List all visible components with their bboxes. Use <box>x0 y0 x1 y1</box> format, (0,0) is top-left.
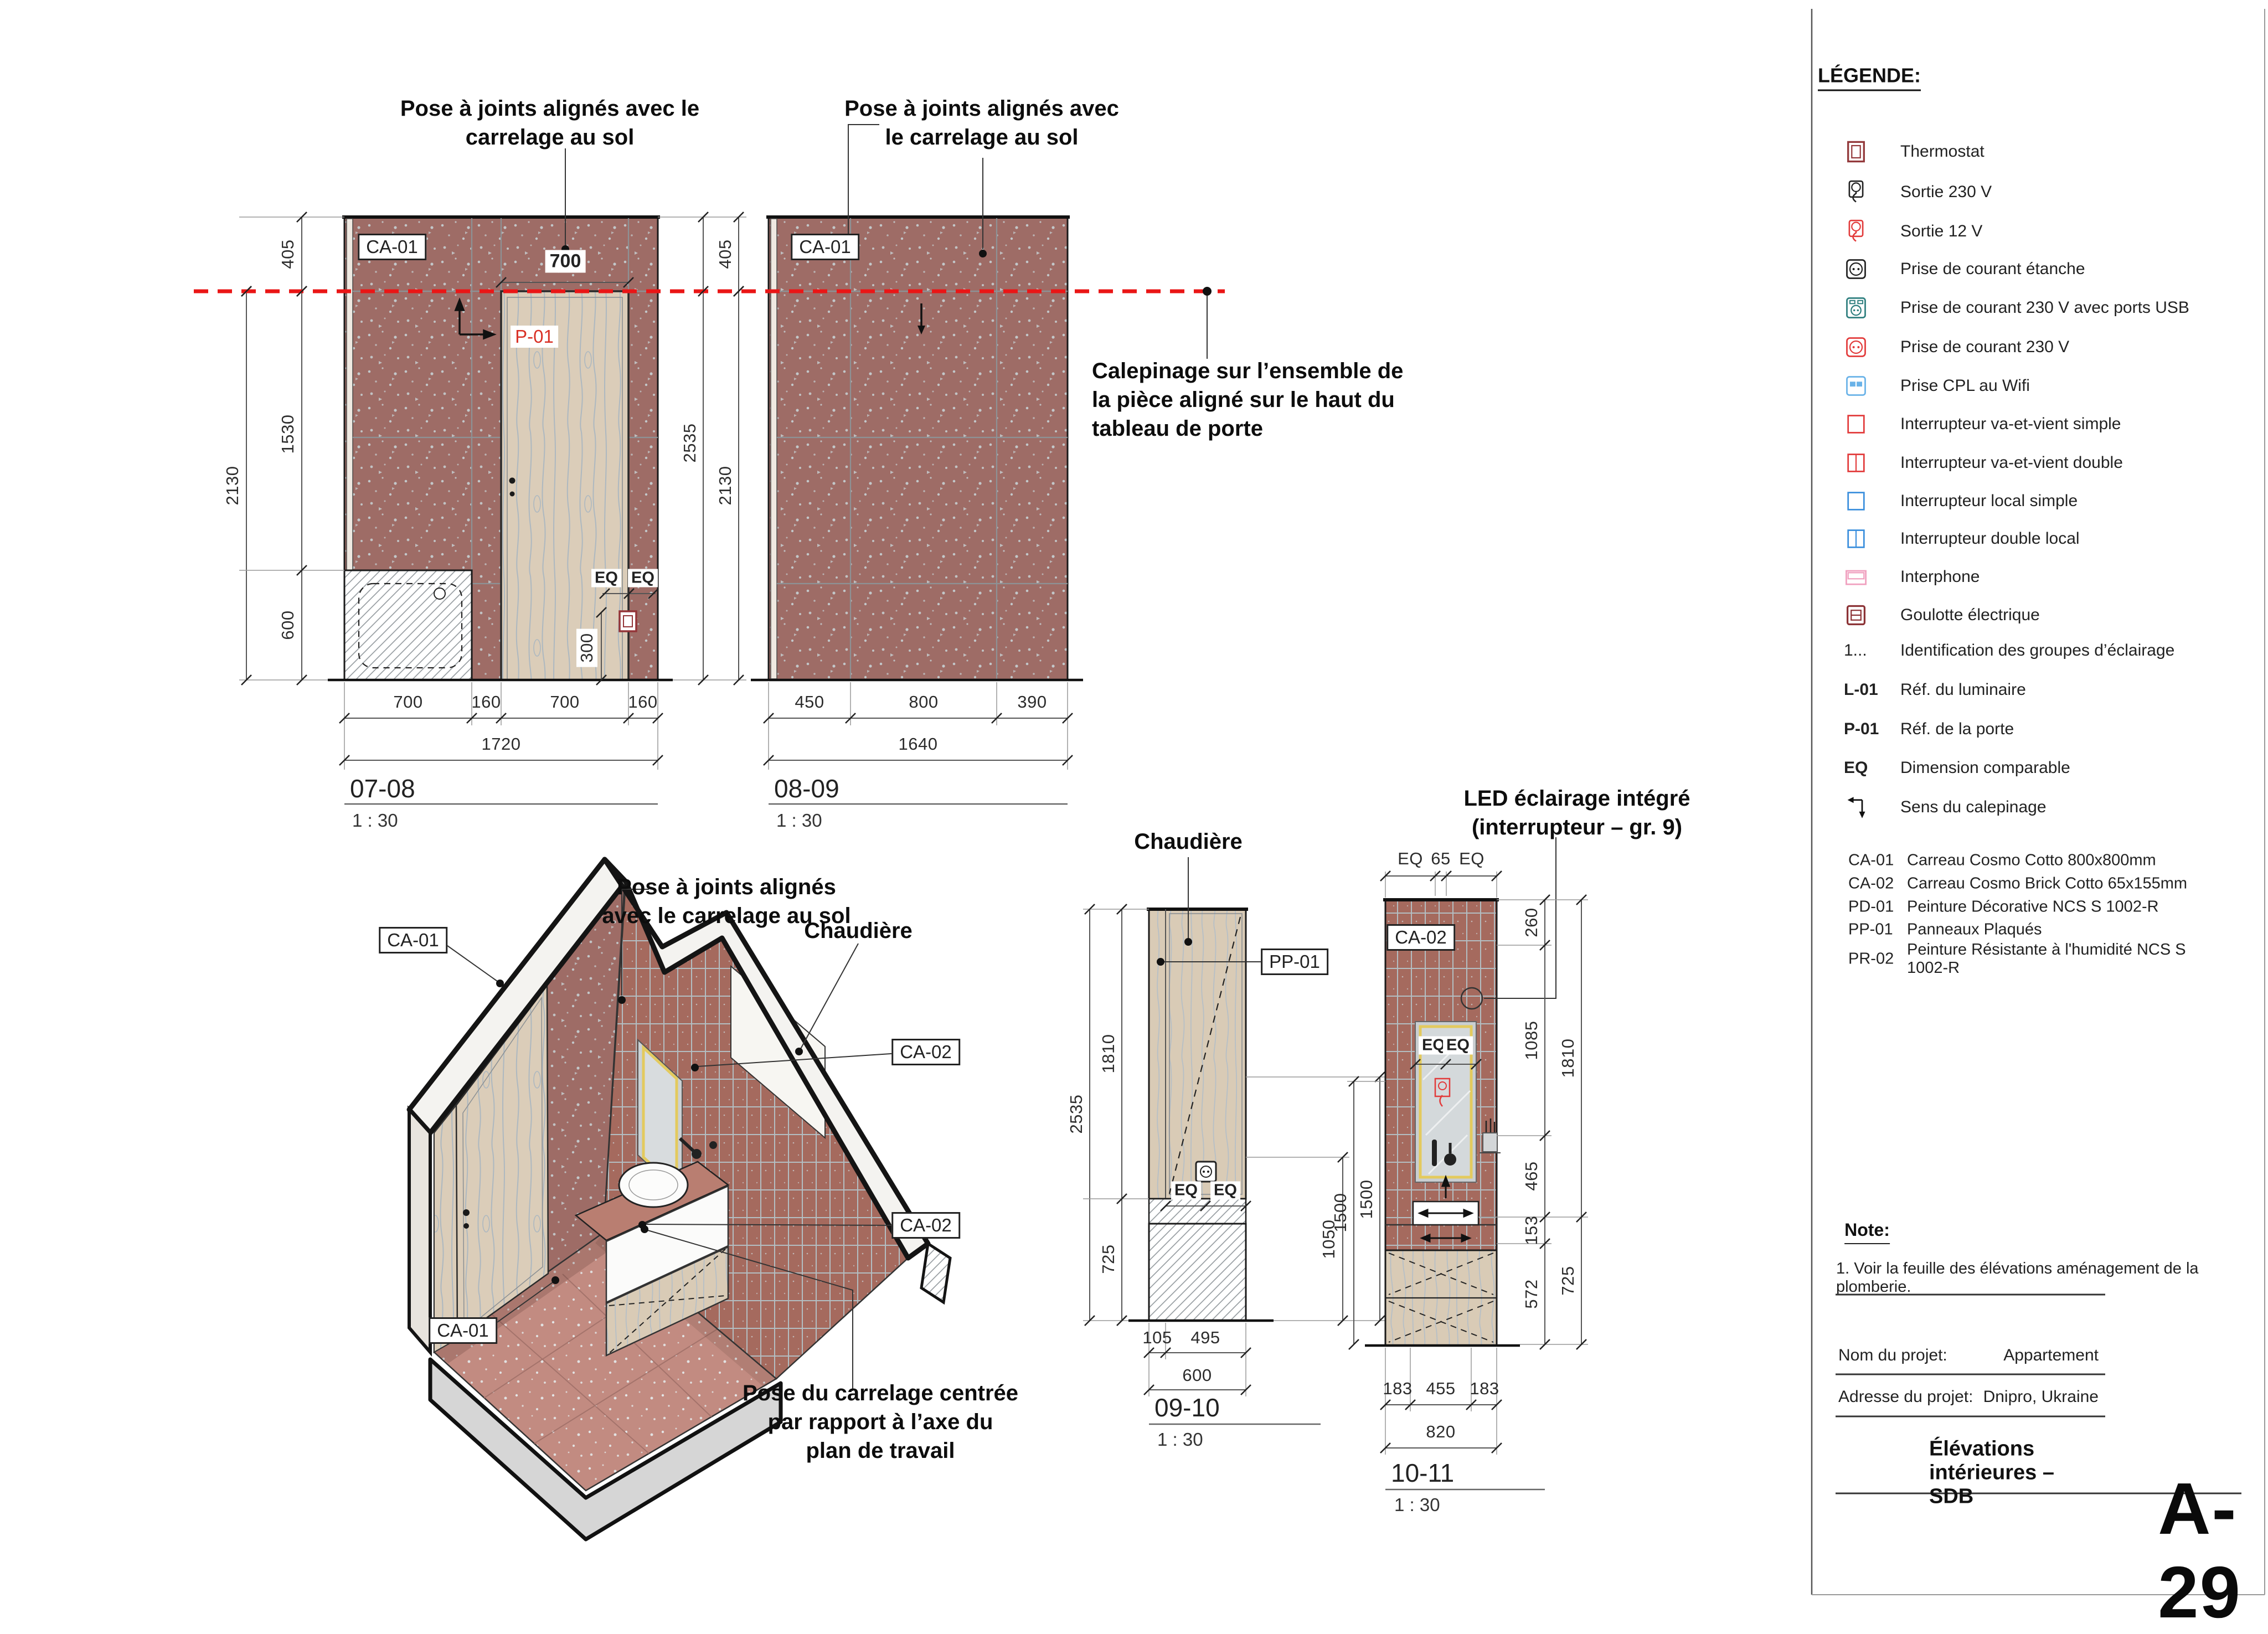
outlet-230v-icon <box>1844 180 1868 204</box>
legend-item-label: Prise de courant étanche <box>1900 260 2255 279</box>
tag-p01: P-01 <box>511 326 558 348</box>
view-scale-1011: 1 : 30 <box>1394 1494 1440 1516</box>
legend-item-label: Prise CPL au Wifi <box>1900 377 2255 395</box>
socket-usb-icon <box>1844 296 1868 320</box>
dim-label: 160 <box>628 692 657 712</box>
switch-2way-single-icon <box>1844 412 1868 436</box>
tag-ca01-axon-floor: CA-01 <box>429 1317 497 1344</box>
view-title-1011: 10-11 <box>1391 1458 1454 1488</box>
dim-label: 1810 <box>1099 1034 1118 1074</box>
eq-label: EQ <box>591 569 621 587</box>
dim-label: 1720 <box>482 734 521 754</box>
material-label: Panneaux Plaqués <box>1907 921 2228 939</box>
socket-symbol <box>1196 1162 1216 1182</box>
view-title-0910: 09-10 <box>1154 1393 1220 1422</box>
dim-label: 700 <box>393 692 422 712</box>
legend-material: PR-02Peinture Résistante à l'humidité NC… <box>1836 944 2262 975</box>
legend-item-label: Interrupteur va-et-vient simple <box>1900 415 2255 434</box>
legend-item: Interrupteur double local <box>1836 523 2262 554</box>
eq-label: EQ <box>1171 1182 1201 1200</box>
door-p01 <box>501 291 628 680</box>
sheet-number: A-29 <box>2158 1467 2241 1634</box>
view-title-0708: 07-08 <box>350 774 415 803</box>
dim-300: 300 <box>576 628 597 667</box>
legend-ref: 1...Identification des groupes d’éclaira… <box>1836 635 2262 666</box>
dim-label: 1500 <box>1357 1180 1377 1219</box>
outlet-12v-icon <box>1844 219 1868 244</box>
tag-ca02-axon-counter: CA-02 <box>891 1212 960 1239</box>
legend-item: Interphone <box>1836 561 2262 592</box>
tag-ca01-axon-wall: CA-01 <box>379 927 447 953</box>
legend-item-label: Sortie 230 V <box>1900 183 2255 202</box>
material-code: CA-01 <box>1848 852 1894 870</box>
legend-item-label: Interrupteur double local <box>1900 529 2255 548</box>
dim-label: 390 <box>1017 692 1047 712</box>
note-title: Note: <box>1844 1220 1890 1244</box>
project-address-label: Adresse du projet: <box>1838 1388 1973 1406</box>
legend-item-label: Interrupteur local simple <box>1900 492 2255 511</box>
legend-ref: Sens du calepinage <box>1836 792 2262 823</box>
tag-ca01-e0708: CA-01 <box>358 234 426 260</box>
legend-item: Goulotte électrique <box>1836 600 2262 631</box>
dim-label: 2535 <box>1066 1095 1086 1134</box>
legend-item-label: Prise de courant 230 V <box>1900 338 2255 357</box>
drawing-sheet: Pose à joints alignés avec lecarrelage a… <box>0 0 2268 1604</box>
tag-ca02-axon-wall: CA-02 <box>891 1039 960 1065</box>
material-label: Peinture Résistante à l'humidité NCS S 1… <box>1907 941 2228 977</box>
dim-label: 260 <box>1522 908 1542 937</box>
project-name-label: Nom du projet: <box>1838 1346 1947 1365</box>
annotation-pose-0708: Pose à joints alignés avec lecarrelage a… <box>400 94 699 152</box>
project-name-value: Appartement <box>2003 1346 2099 1365</box>
legend-item: Interrupteur va-et-vient double <box>1836 447 2262 478</box>
view-scale-0708: 1 : 30 <box>352 810 398 831</box>
bathtub-hatched <box>344 570 472 680</box>
legend-ref-label: Identification des groupes d’éclairage <box>1900 641 2255 660</box>
material-code: CA-02 <box>1848 875 1894 893</box>
dim-label: EQ <box>1459 849 1484 869</box>
view-scale-0809: 1 : 30 <box>776 810 822 831</box>
switch-local-double-icon <box>1844 527 1868 551</box>
dim-label: 105 <box>1142 1328 1172 1348</box>
dim-label: 2130 <box>715 466 735 506</box>
material-label: Carreau Cosmo Brick Cotto 65x155mm <box>1907 875 2228 893</box>
duct-icon <box>1844 603 1868 627</box>
material-label: Peinture Décorative NCS S 1002-R <box>1907 898 2228 916</box>
legend-ref-label: Sens du calepinage <box>1900 798 2255 817</box>
eq-label: EQ <box>1443 1037 1473 1055</box>
dim-label: 600 <box>1182 1365 1212 1385</box>
legend-item-label: Goulotte électrique <box>1900 606 2255 625</box>
legend-item-label: Sortie 12 V <box>1900 222 2255 241</box>
legend-ref-label: Réf. de la porte <box>1900 720 2255 739</box>
legend-item: Prise de courant 230 V avec ports USB <box>1836 292 2262 323</box>
cpl-wifi-icon <box>1844 374 1868 398</box>
dim-label: 600 <box>278 610 298 640</box>
material-code: PD-01 <box>1848 898 1894 916</box>
legend-item-label: Interphone <box>1900 568 2255 586</box>
dim-label: 455 <box>1426 1379 1455 1399</box>
project-address-value: Dnipro, Ukraine <box>1983 1388 2099 1406</box>
annotation-pose-0809: Pose à joints alignés avecle carrelage a… <box>844 94 1119 152</box>
legend-item: Prise de courant 230 V <box>1836 332 2262 363</box>
annotation-pose-centree: Pose du carrelage centréepar rapport à l… <box>743 1379 1018 1465</box>
legend-item: Interrupteur local simple <box>1836 486 2262 517</box>
dim-label: 495 <box>1190 1328 1220 1348</box>
eq-label: EQ <box>628 569 658 587</box>
material-label: Carreau Cosmo Cotto 800x800mm <box>1907 852 2228 870</box>
dim-label: 2535 <box>680 424 700 463</box>
switch-2way-double-icon <box>1844 451 1868 475</box>
dim-label: 700 <box>550 692 579 712</box>
intercom-icon <box>1844 565 1868 589</box>
annotation-led: LED éclairage intégré(interrupteur – gr.… <box>1463 784 1690 842</box>
dim-label: 725 <box>1099 1244 1118 1274</box>
legend-title: LÉGENDE: <box>1818 64 1921 91</box>
dim-label: 450 <box>795 692 824 712</box>
legend-ref-label: Dimension comparable <box>1900 759 2255 777</box>
legend-item: Prise de courant étanche <box>1836 254 2262 285</box>
dim-label: 65 <box>1431 849 1450 869</box>
dim-label: 153 <box>1522 1215 1542 1245</box>
legend-item: Sortie 12 V <box>1836 216 2262 247</box>
annotation-calepinage: Calepinage sur l’ensemble de la pièce al… <box>1092 357 1403 443</box>
legend-ref-code: P-01 <box>1844 720 1879 739</box>
legend-ref-code: 1... <box>1844 641 1867 660</box>
note-body: 1. Voir la feuille des élévations aménag… <box>1836 1260 2268 1296</box>
legend-item: Prise CPL au Wifi <box>1836 370 2262 401</box>
annotation-chaudiere-axon: Chaudière <box>804 916 913 945</box>
dim-label: 1640 <box>899 734 938 754</box>
dim-label: 183 <box>1470 1379 1499 1399</box>
legend-item-label: Interrupteur va-et-vient double <box>1900 453 2255 472</box>
legend-item-label: Thermostat <box>1900 142 2255 161</box>
view-scale-0910: 1 : 30 <box>1157 1429 1203 1450</box>
socket-230v-icon <box>1844 335 1868 359</box>
legend-item: Interrupteur va-et-vient simple <box>1836 409 2262 440</box>
annotation-chaudiere-0910: Chaudière <box>1134 827 1243 856</box>
legend-item: Sortie 230 V <box>1836 177 2262 208</box>
tag-ca01-e0809: CA-01 <box>791 234 859 260</box>
sheet-title: Élévations intérieures – SDB <box>1929 1437 2099 1509</box>
legend-ref: L-01Réf. du luminaire <box>1836 674 2262 705</box>
legend-item-label: Prise de courant 230 V avec ports USB <box>1900 298 2255 317</box>
switch-local-single-icon <box>1844 489 1868 513</box>
layout-direction-icon <box>1844 795 1868 819</box>
dim-label: 405 <box>278 239 298 269</box>
dim-label: 160 <box>471 692 501 712</box>
legend-item: Thermostat <box>1836 136 2262 167</box>
dim-label: 800 <box>909 692 938 712</box>
view-title-0809: 08-09 <box>774 774 839 803</box>
dim-label: 465 <box>1522 1161 1542 1190</box>
thermostat-symbol <box>620 611 636 631</box>
dim-label: 405 <box>715 239 735 269</box>
material-code: PR-02 <box>1848 950 1894 968</box>
dim-label: 2130 <box>223 466 243 506</box>
elevation-09-10 <box>1083 857 1386 1424</box>
dim-label: 1085 <box>1522 1021 1542 1060</box>
thermostat-icon <box>1844 140 1868 164</box>
dim-label: EQ <box>1398 849 1423 869</box>
legend-ref: EQDimension comparable <box>1836 752 2262 784</box>
legend-ref-code: L-01 <box>1844 681 1878 699</box>
dim-label: 725 <box>1558 1266 1578 1295</box>
dim-700-door: 700 <box>545 250 586 273</box>
legend-ref-code: EQ <box>1844 759 1868 777</box>
socket-waterproof-icon <box>1844 257 1868 281</box>
dim-label: 1810 <box>1558 1039 1578 1078</box>
dim-label: 183 <box>1383 1379 1412 1399</box>
tag-pp01: PP-01 <box>1261 949 1328 975</box>
dim-label: 1530 <box>278 415 298 454</box>
dim-label: 1500 <box>1331 1193 1351 1233</box>
dim-label: 572 <box>1522 1279 1542 1308</box>
dim-label: 820 <box>1426 1422 1455 1442</box>
eq-label: EQ <box>1210 1182 1240 1200</box>
legend-ref-label: Réf. du luminaire <box>1900 681 2255 699</box>
legend-ref: P-01Réf. de la porte <box>1836 714 2262 745</box>
material-code: PP-01 <box>1848 921 1893 939</box>
tag-ca02-e1011: CA-02 <box>1386 924 1455 951</box>
